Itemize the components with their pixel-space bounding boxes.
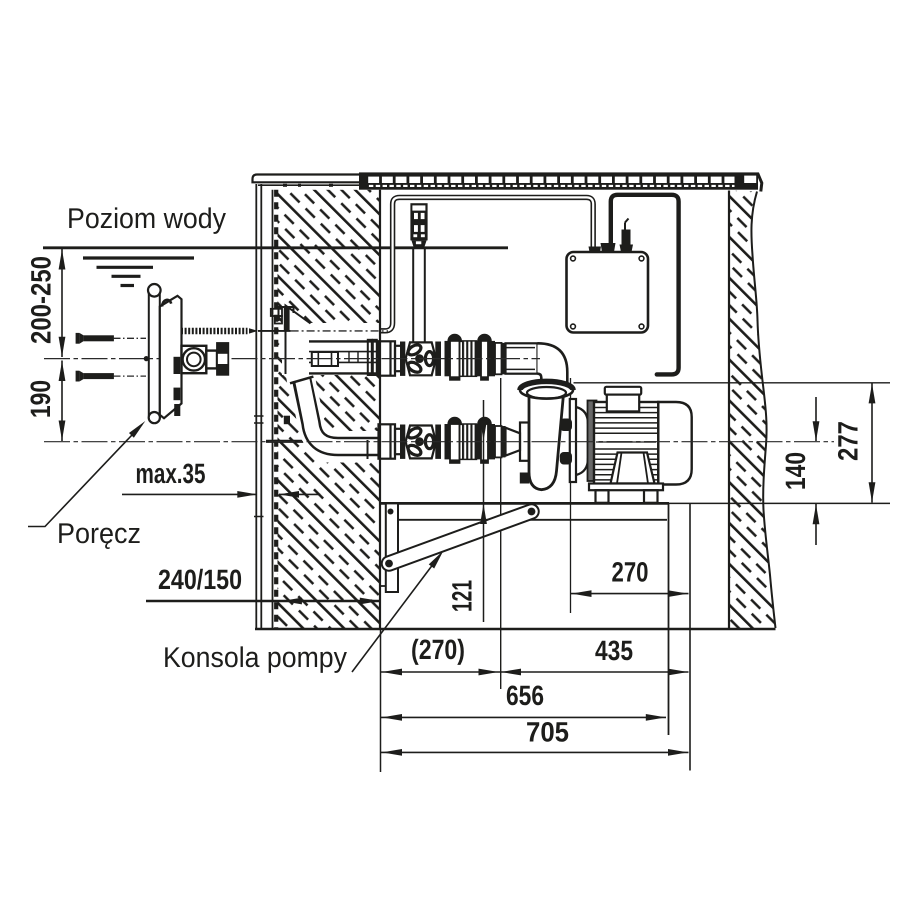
svg-text:277: 277 [833,421,864,461]
svg-text:705: 705 [526,717,569,748]
svg-text:190: 190 [25,380,56,418]
svg-text:656: 656 [506,680,544,711]
svg-text:240/150: 240/150 [158,564,242,595]
svg-text:121: 121 [447,580,478,612]
svg-text:max.35: max.35 [136,458,206,489]
svg-text:(270): (270) [411,634,465,665]
svg-text:140: 140 [780,452,811,490]
svg-text:Konsola pompy: Konsola pompy [163,642,348,674]
svg-text:270: 270 [612,557,649,588]
svg-text:435: 435 [595,635,633,666]
svg-text:200-250: 200-250 [26,256,57,344]
svg-text:Poręcz: Poręcz [57,518,141,550]
svg-text:Poziom wody: Poziom wody [67,203,227,235]
